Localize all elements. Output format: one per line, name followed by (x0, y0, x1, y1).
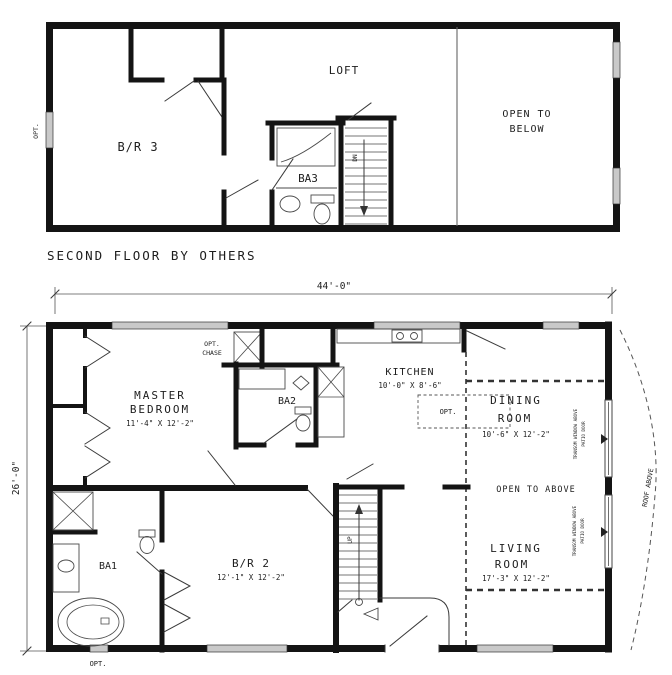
bathtub-inner (67, 605, 119, 639)
vanity-sink-symbol (58, 560, 74, 572)
ba2-walls (236, 365, 316, 445)
label-roof-note: ROOF ABOVE (641, 468, 656, 508)
label-living-1: LIVING (490, 542, 542, 555)
second-floor-caption: SECOND FLOOR BY OTHERS (47, 248, 257, 263)
label-open-below-1: OPEN TO (502, 109, 551, 120)
label-transom-dining-1: TRANSOM WINDOW ABOVE (573, 408, 578, 459)
label-kitchen-size: 10'-0" X 8'-6" (378, 381, 441, 390)
window-living (477, 645, 553, 652)
shower-x (53, 492, 93, 530)
tub-symbol (239, 369, 285, 389)
master-door-swing (208, 451, 235, 485)
master-closets (53, 329, 110, 488)
depth-dimension-line (20, 326, 46, 651)
toilet-symbol (314, 204, 330, 224)
toilet-tank (295, 407, 311, 414)
dining-door-swing (467, 331, 505, 349)
ba1-door-swing (137, 552, 162, 574)
toilet-symbol (296, 415, 310, 431)
ba3-door-swing (272, 159, 293, 190)
label-ba3: BA3 (298, 172, 318, 185)
ba2-door-swing (264, 419, 297, 443)
stairs1-arrowhead-icon (355, 504, 363, 514)
label-transom-dining-2: PATIO DOOR (581, 421, 586, 447)
br3-closet-door-swings (165, 81, 222, 117)
label-br2: B/R 2 (232, 557, 270, 570)
label-living-size: 17'-3" X 12'-2" (482, 574, 550, 583)
label-depth-dimension: 26'-0" (11, 461, 22, 495)
bedroom2-closet-bifolds (164, 572, 190, 632)
window-master (112, 322, 228, 329)
label-kitchen-opt: OPT. (440, 408, 457, 416)
floor-plan-drawing: B/R 3 LOFT BA3 OPEN TO BELOW DN OPT. SEC… (0, 0, 672, 675)
label-dining-1: DINING (490, 394, 542, 407)
chase-walls (224, 325, 337, 366)
label-open-above: OPEN TO ABOVE (496, 485, 576, 495)
fridge-x (318, 367, 344, 397)
shower-curve (281, 133, 331, 162)
bifold-door-symbols (85, 336, 110, 478)
label-opt-bottom: OPT. (90, 660, 107, 668)
label-open-below-2: BELOW (509, 124, 544, 135)
label-master-size: 11'-4" X 12'-2" (126, 419, 194, 428)
br3-hall-door-swing (226, 180, 258, 198)
label-br3: B/R 3 (117, 140, 158, 154)
foyer-marker-icon (364, 608, 378, 620)
label-ba2: BA2 (278, 396, 296, 407)
kitchen-top-counter (337, 329, 460, 343)
label-width-dimension: 44'-0" (317, 281, 351, 292)
floor-plan-page: B/R 3 LOFT BA3 OPEN TO BELOW DN OPT. SEC… (0, 0, 672, 675)
ba2-fixtures (239, 369, 311, 431)
label-transom-living-2: PATIO DOOR (580, 518, 585, 544)
bedroom2-door-swing (307, 489, 333, 516)
label-dining-2: ROOM (498, 412, 533, 425)
label-living-2: ROOM (495, 558, 530, 571)
bathtub-faucet (101, 618, 109, 624)
window-bedroom2 (207, 645, 287, 652)
understair-door-swing (338, 600, 352, 612)
second-floor-plan: B/R 3 LOFT BA3 OPEN TO BELOW DN OPT. SEC… (32, 25, 620, 263)
label-stairs1-up: UP (347, 536, 354, 544)
label-master-1: MASTER (134, 389, 186, 402)
label-master-2: BEDROOM (130, 403, 190, 416)
sink-symbol (280, 196, 300, 212)
label-br2-size: 12'-1" X 12'-2" (217, 573, 285, 582)
vanity-sink-symbol (293, 376, 309, 390)
stairs2-walls (338, 118, 394, 229)
first-floor-plan: MASTER BEDROOM 11'-4" X 12'-2" OPT. CHAS… (50, 322, 657, 668)
window-left-opt (46, 112, 53, 148)
label-opt-chase-2: CHASE (202, 349, 222, 357)
label-kitchen: KITCHEN (385, 367, 434, 378)
kitchen-left-counter (318, 367, 344, 437)
toilet-symbol (140, 537, 154, 554)
stairs2-arrowhead-icon (360, 206, 368, 216)
window-right-1 (613, 42, 620, 78)
toilet-tank (139, 530, 155, 537)
br3-closet-walls (131, 25, 224, 80)
label-opt-chase-1: OPT. (204, 340, 220, 348)
window-right-2 (613, 168, 620, 204)
front-door-swing (390, 616, 427, 646)
window-dining (543, 322, 579, 329)
label-stairs2-dn: DN (352, 154, 359, 162)
sink-bowl-1 (397, 333, 404, 340)
label-ba1: BA1 (99, 561, 117, 572)
hall-door-swing (347, 464, 373, 479)
window-kitchen (374, 322, 460, 329)
label-dining-size: 10'-6" X 12'-2" (482, 430, 550, 439)
vanity-counter (53, 544, 79, 592)
label-transom-living-1: TRANSOM WINDOW ABOVE (572, 505, 577, 556)
closet-front-walls (53, 329, 85, 488)
front-door-opening (385, 644, 439, 653)
foyer-rail (380, 598, 449, 645)
label-opt-window-2f: OPT. (32, 123, 40, 139)
toilet-tank (311, 195, 334, 203)
opt-chase-x (234, 332, 262, 363)
sink-bowl-2 (411, 333, 418, 340)
label-loft: LOFT (329, 64, 360, 77)
